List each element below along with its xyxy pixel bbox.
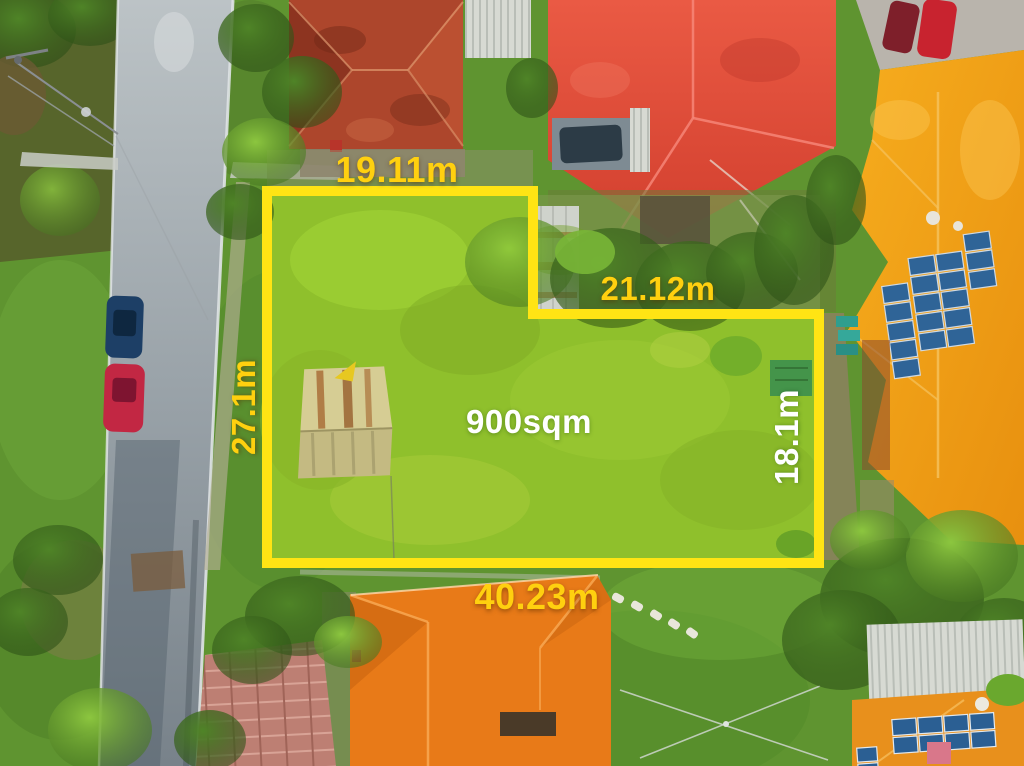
lot-area-label: 900sqm bbox=[466, 403, 592, 441]
house-bottom-right bbox=[852, 619, 1024, 766]
courtyard-gap bbox=[500, 712, 556, 736]
photo-scene bbox=[0, 0, 1024, 766]
dimension-label-inner-top: 21.12m bbox=[601, 270, 716, 308]
shed-roof-top bbox=[465, 0, 531, 58]
dimension-label-bottom: 40.23m bbox=[474, 576, 599, 618]
aerial-photo: 19.11m 21.12m 27.1m 18.1m 900sqm 40.23m bbox=[0, 0, 1024, 766]
dimension-label-left: 27.1m bbox=[225, 359, 263, 455]
dark-vehicle bbox=[559, 124, 623, 163]
dimension-label-top: 19.11m bbox=[335, 149, 458, 191]
dimension-label-right: 18.1m bbox=[768, 389, 806, 485]
